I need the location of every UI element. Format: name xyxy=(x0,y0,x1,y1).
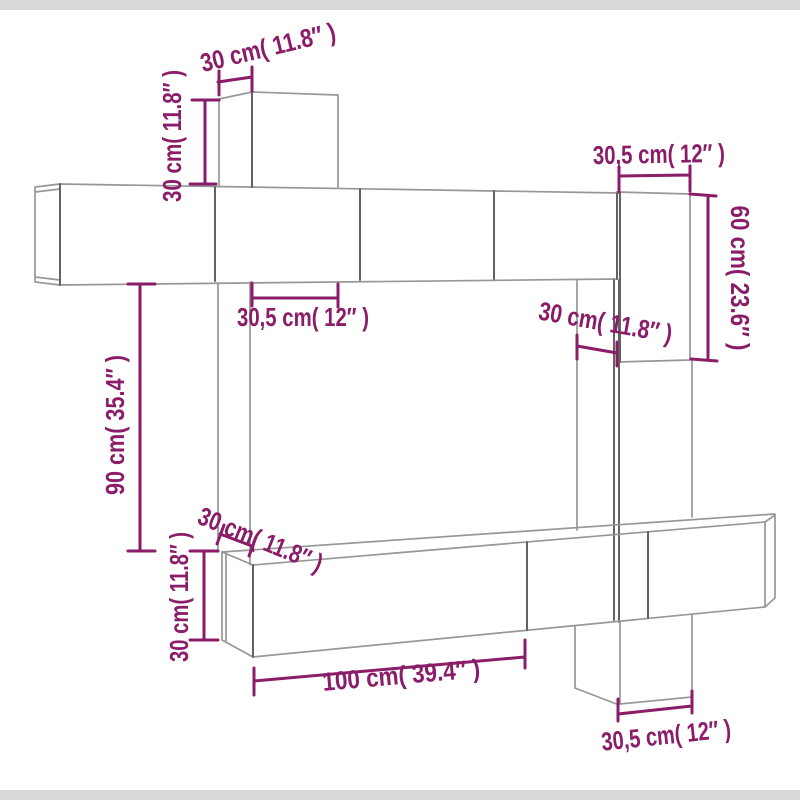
dimension-bottom-left-height: 30 cm( 11.8″ ) xyxy=(164,532,218,662)
top-cabinet-outline xyxy=(219,92,338,187)
dimension-bottom-width: 100 cm( 39.4″ ) xyxy=(254,640,525,697)
left-vertical-panel xyxy=(218,282,253,657)
bottom-letterbox-band xyxy=(0,790,800,800)
dimension-label: 30 cm( 11.8″ ) xyxy=(164,532,194,662)
dimension-top-box-width: 30 cm( 11.8″ ) xyxy=(197,17,338,95)
dimension-label: 90 cm( 35.4″ ) xyxy=(100,355,130,495)
bottom-cabinet xyxy=(575,615,692,705)
dimension-label: 30 cm( 11.8″ ) xyxy=(157,70,187,202)
diagram-stage: 30 cm( 11.8″ ) 30 cm( 11.8″ ) 30,5 cm( 1… xyxy=(0,0,800,800)
bottom-cabinet-outline xyxy=(575,615,692,705)
dimension-label: 60 cm( 23.6″ ) xyxy=(725,206,755,351)
top-cabinet xyxy=(219,92,338,187)
dimension-line xyxy=(577,335,617,366)
dimension-label: 30,5 cm( 12″ ) xyxy=(237,302,369,332)
top-shelf-outline xyxy=(35,184,620,285)
dimension-label: 30 cm( 11.8″ ) xyxy=(197,17,338,78)
dimension-label: 30 cm( 11.8″ ) xyxy=(194,501,328,578)
dimension-top-box-height: 30 cm( 11.8″ ) xyxy=(157,70,219,202)
dimension-line xyxy=(618,691,692,721)
dimension-mid-width: 30,5 cm( 12″ ) xyxy=(237,283,369,332)
dimension-mid-right-width: 30 cm( 11.8″ ) xyxy=(536,296,674,366)
dimension-label: 30,5 cm( 12″ ) xyxy=(600,713,732,756)
dimension-line xyxy=(128,284,155,551)
dimension-left-height: 90 cm( 35.4″ ) xyxy=(100,284,155,551)
dimension-line xyxy=(690,194,717,361)
dimension-label: 100 cm( 39.4″ ) xyxy=(321,653,481,697)
dimension-bottom-left-depth: 30 cm( 11.8″ ) xyxy=(194,501,328,578)
dimension-label: 30 cm( 11.8″ ) xyxy=(536,296,674,349)
dimension-label: 30,5 cm( 12″ ) xyxy=(593,138,726,170)
top-shelf-dividers xyxy=(60,184,617,285)
dimension-top-right-width: 30,5 cm( 12″ ) xyxy=(593,138,726,192)
dimension-annotations: 30 cm( 11.8″ ) 30 cm( 11.8″ ) 30,5 cm( 1… xyxy=(100,17,755,757)
top-letterbox-band xyxy=(0,0,800,10)
dimension-diagram-svg: 30 cm( 11.8″ ) 30 cm( 11.8″ ) 30,5 cm( 1… xyxy=(0,0,800,800)
dimension-line xyxy=(190,100,219,184)
top-shelf-row xyxy=(35,184,620,285)
dimension-right-height: 60 cm( 23.6″ ) xyxy=(690,194,755,361)
left-vertical-panel-outline xyxy=(218,282,253,657)
dimension-line xyxy=(619,166,690,192)
furniture-outline xyxy=(35,92,775,705)
dimension-line xyxy=(190,551,218,640)
